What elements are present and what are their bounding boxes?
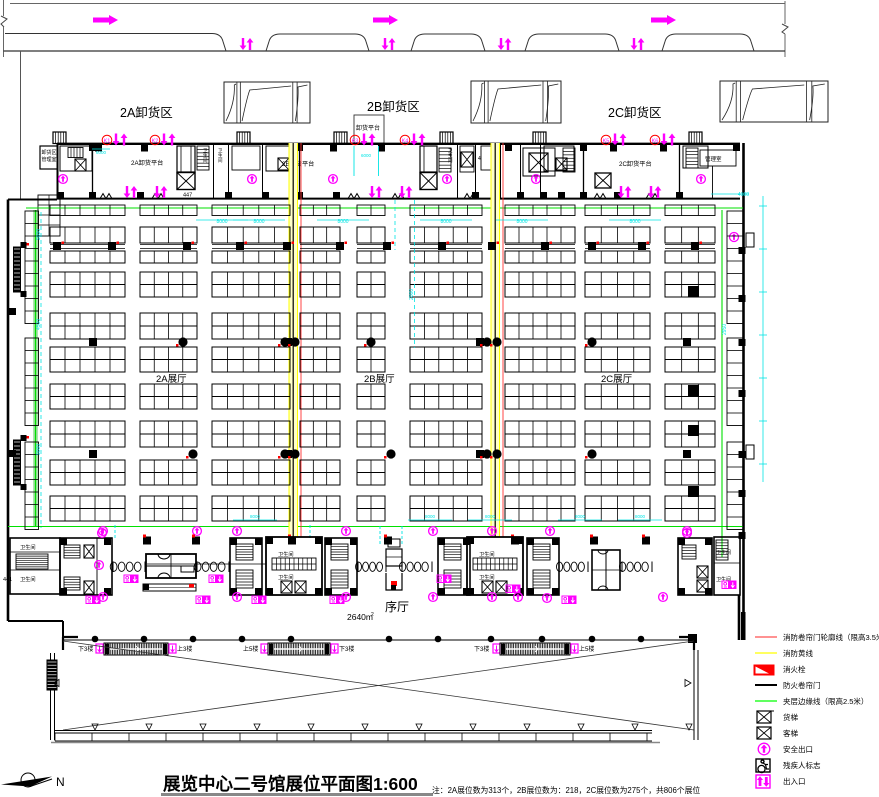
svg-text:货梯: 货梯 <box>783 712 798 722</box>
svg-text:8000: 8000 <box>425 514 436 519</box>
svg-text:卸货平台: 卸货平台 <box>356 124 380 132</box>
svg-text:2000: 2000 <box>409 289 415 300</box>
svg-text:上5楼: 上5楼 <box>243 645 258 653</box>
svg-text:2A卸货平台: 2A卸货平台 <box>131 159 163 167</box>
svg-text:安全出口: 安全出口 <box>783 744 813 754</box>
svg-text:K4: K4 <box>402 139 409 145</box>
svg-text:卫生间: 卫生间 <box>20 575 36 583</box>
svg-text:间: 间 <box>203 157 208 164</box>
svg-text:客梯: 客梯 <box>783 728 798 738</box>
svg-text:2B卸货区: 2B卸货区 <box>367 99 420 114</box>
svg-text:出入口: 出入口 <box>783 776 806 786</box>
svg-text:8000: 8000 <box>485 514 496 519</box>
svg-text:卫生间: 卫生间 <box>479 550 495 558</box>
svg-text:8000: 8000 <box>629 219 640 225</box>
svg-text:卫生间: 卫生间 <box>278 550 294 558</box>
svg-text:2950: 2950 <box>722 324 728 335</box>
svg-text:4100: 4100 <box>738 192 749 198</box>
svg-text:8000: 8000 <box>337 219 348 225</box>
svg-text:8000: 8000 <box>440 219 451 225</box>
svg-text:夹层边缘线（限高2.5米）: 夹层边缘线（限高2.5米） <box>783 696 868 706</box>
svg-text:管理室: 管理室 <box>705 155 722 163</box>
svg-text:下3楼: 下3楼 <box>78 645 93 653</box>
svg-text:2C展厅: 2C展厅 <box>601 374 633 385</box>
svg-text:2A展厅: 2A展厅 <box>156 374 187 385</box>
svg-text:2B卸货平台: 2B卸货平台 <box>282 160 314 168</box>
svg-text:K2: K2 <box>152 139 159 145</box>
svg-text:卫生间: 卫生间 <box>278 573 294 581</box>
svg-text:2B展厅: 2B展厅 <box>364 374 395 385</box>
svg-text:2A卸货区: 2A卸货区 <box>120 105 173 120</box>
svg-text:注：2A展位数为313个，2B展位数为：218，2C展位数为: 注：2A展位数为313个，2B展位数为：218，2C展位数为275个，共806个… <box>432 785 700 795</box>
svg-text:4: 4 <box>478 156 481 162</box>
svg-text:卸货区: 卸货区 <box>42 149 57 156</box>
svg-text:序厅: 序厅 <box>385 599 409 614</box>
svg-text:9000: 9000 <box>36 444 42 455</box>
svg-text:卫生间: 卫生间 <box>20 543 36 551</box>
svg-text:上3楼: 上3楼 <box>177 645 192 653</box>
svg-text:K5: K5 <box>603 139 610 145</box>
svg-text:下3楼: 下3楼 <box>339 645 354 653</box>
svg-text:8000: 8000 <box>575 514 586 519</box>
svg-text:8000: 8000 <box>253 219 264 225</box>
svg-text:K1: K1 <box>104 139 111 145</box>
svg-text:卫生间: 卫生间 <box>716 549 731 556</box>
svg-text:9000: 9000 <box>36 229 42 240</box>
svg-text:K3: K3 <box>352 139 359 145</box>
svg-text:8000: 8000 <box>250 514 261 519</box>
svg-text:上5楼: 上5楼 <box>579 645 594 653</box>
svg-text:2C卸货区: 2C卸货区 <box>608 105 661 120</box>
svg-text:残疾人标志: 残疾人标志 <box>783 760 821 770</box>
svg-text:管理室: 管理室 <box>42 156 57 163</box>
svg-text:8000: 8000 <box>216 219 227 225</box>
svg-text:K6: K6 <box>652 139 659 145</box>
svg-text:防火卷帘门: 防火卷帘门 <box>783 680 821 690</box>
svg-text:441: 441 <box>3 577 12 583</box>
svg-text:N: N <box>56 775 65 789</box>
svg-text:消防卷帘门轮廓线（限高3.5米）: 消防卷帘门轮廓线（限高3.5米） <box>783 632 879 642</box>
svg-text:间: 间 <box>448 157 453 164</box>
svg-text:展览中心二号馆展位平面图1:600: 展览中心二号馆展位平面图1:600 <box>163 774 418 794</box>
svg-text:下3楼: 下3楼 <box>474 645 489 653</box>
svg-text:消火栓: 消火栓 <box>783 664 806 674</box>
svg-text:8000: 8000 <box>516 219 527 225</box>
svg-text:2C卸货平台: 2C卸货平台 <box>619 160 652 168</box>
svg-text:2640m: 2640m <box>347 612 373 622</box>
svg-text:2: 2 <box>371 612 374 618</box>
svg-text:间: 间 <box>218 157 223 164</box>
svg-text:8000: 8000 <box>635 514 646 519</box>
svg-text:6000: 6000 <box>361 153 372 158</box>
svg-text:6000: 6000 <box>96 150 107 155</box>
svg-text:4500: 4500 <box>36 319 42 330</box>
svg-text:消防黄线: 消防黄线 <box>783 648 813 658</box>
svg-text:卫生间: 卫生间 <box>479 573 495 581</box>
svg-text:447: 447 <box>183 193 192 199</box>
